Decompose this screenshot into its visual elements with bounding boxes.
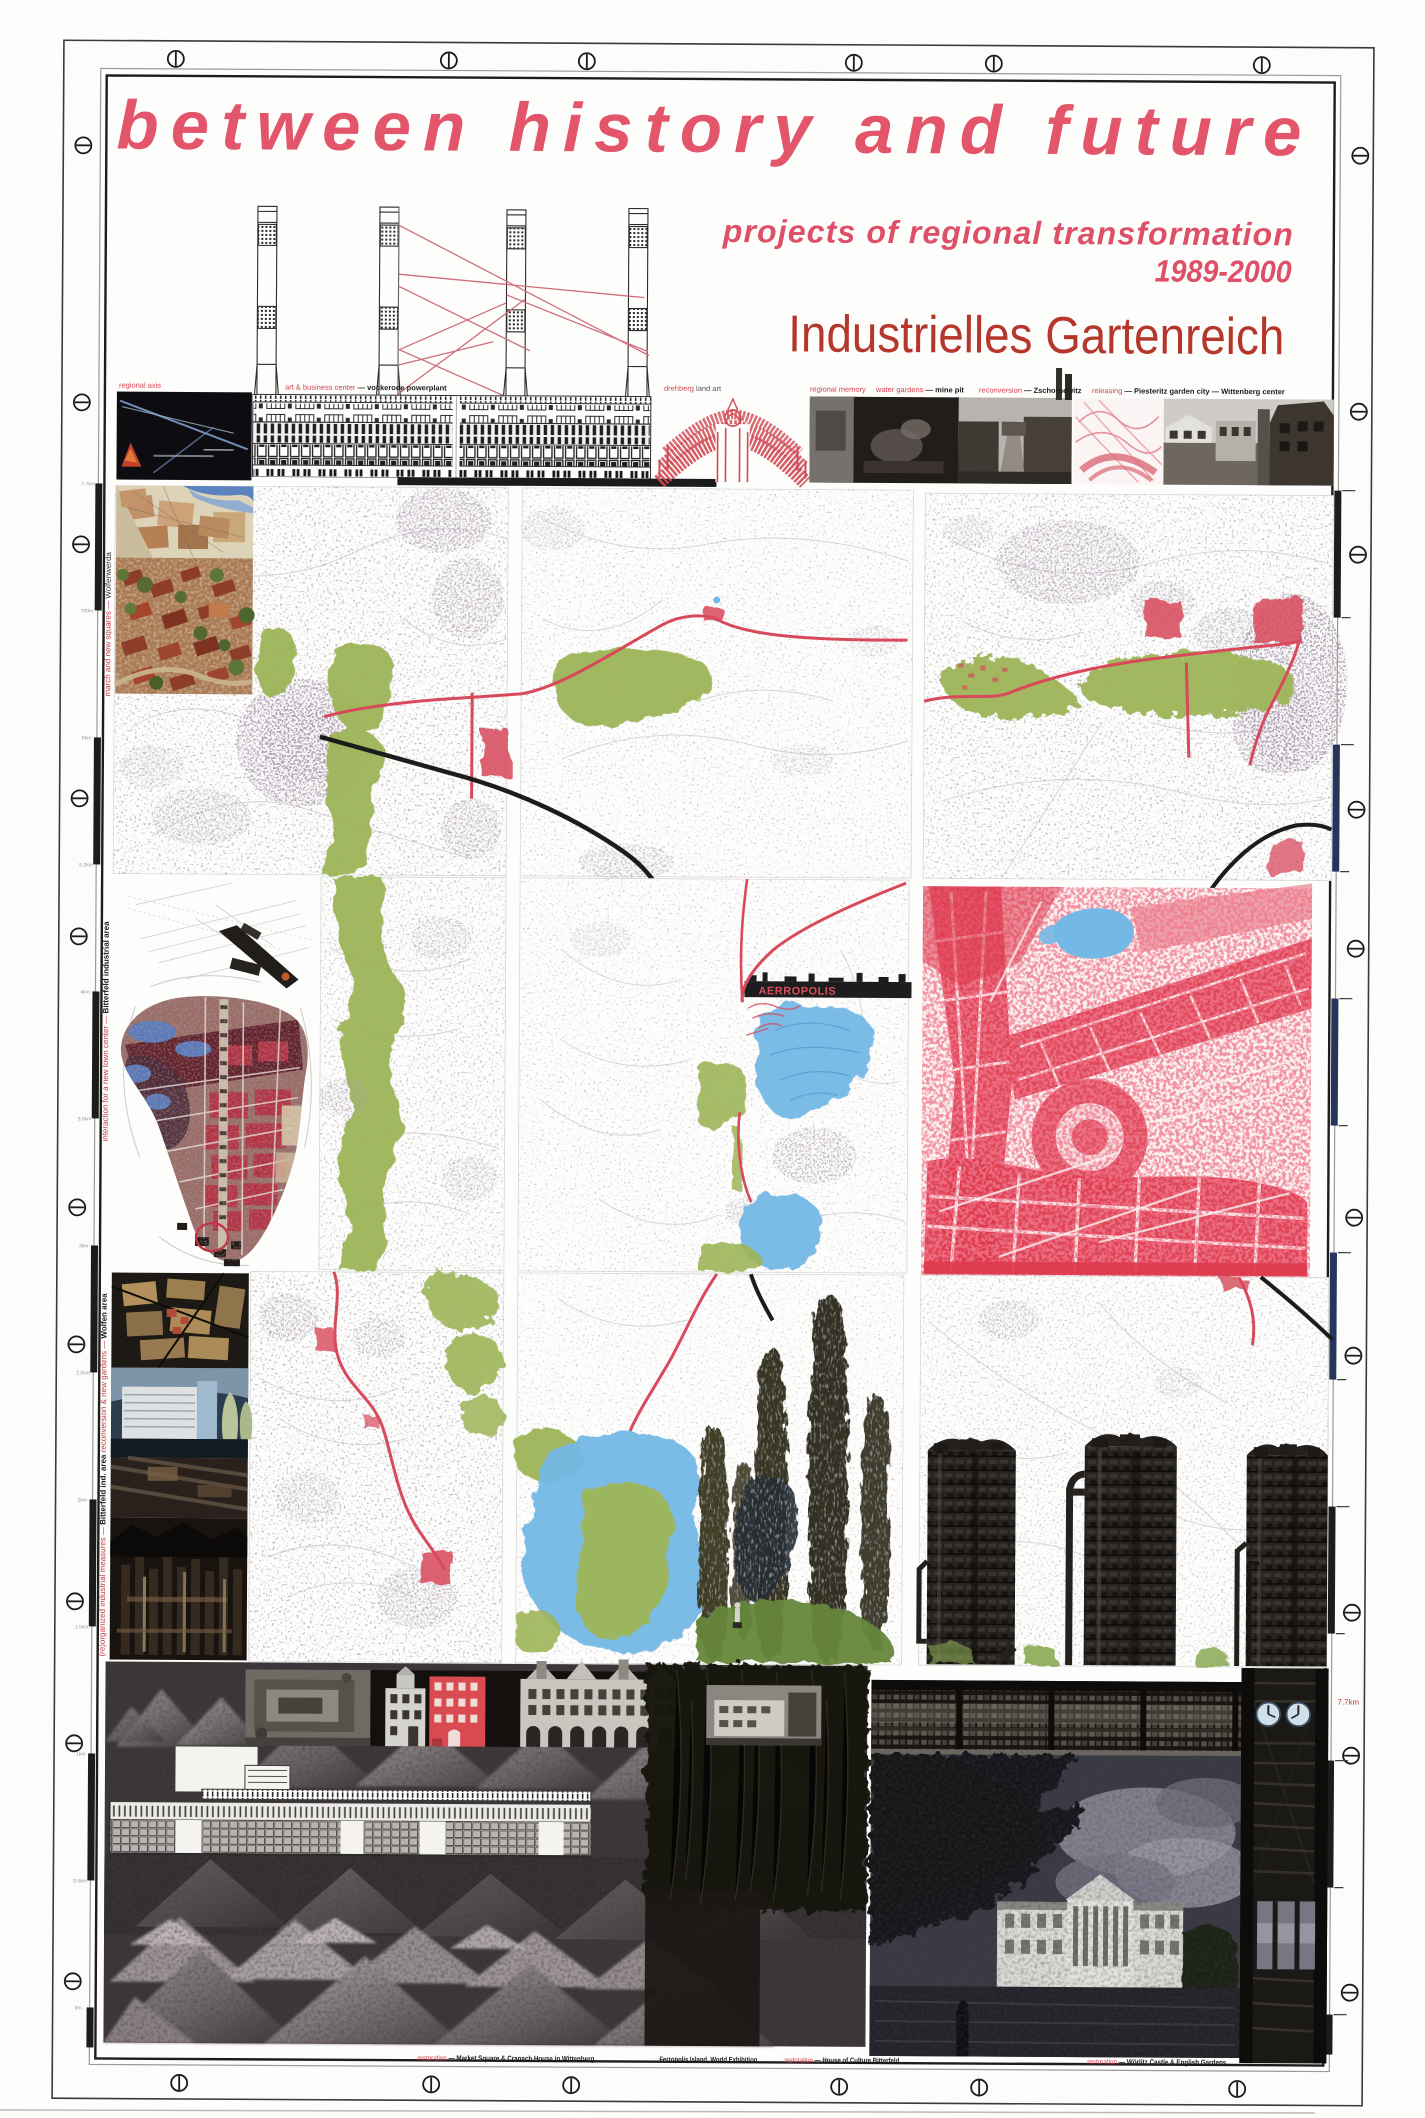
svg-text:regional memory: regional memory (810, 385, 866, 394)
svg-text:restoration — House of Culture: restoration — House of Culture Bitterfel… (784, 2055, 899, 2065)
svg-text:3.5km: 3.5km (78, 1116, 92, 1122)
svg-text:4km: 4km (80, 989, 89, 995)
svg-text:2.5km: 2.5km (76, 1370, 90, 1376)
svg-text:1989-2000: 1989-2000 (1155, 254, 1292, 290)
svg-text:interaction for a new town cen: interaction for a new town center — Bitt… (101, 921, 111, 1142)
svg-text:0m: 0m (75, 2005, 82, 2011)
svg-text:2km: 2km (78, 1497, 87, 1503)
svg-text:AERROPOLIS: AERROPOLIS (758, 985, 836, 997)
svg-text:0.5km: 0.5km (73, 1878, 87, 1884)
svg-text:march and new squares — Wolf: march and new squares — Wolfenwerda (103, 552, 113, 697)
svg-text:restoration — Market Square &: restoration — Market Square & Cranach Ho… (417, 2053, 594, 2063)
svg-text:700m: 700m (81, 608, 94, 614)
svg-text:6km: 6km (82, 735, 91, 741)
svg-text:restoration — Wörlitz Castle &: restoration — Wörlitz Castle & English G… (1087, 2057, 1226, 2067)
svg-text:5.2km: 5.2km (79, 862, 93, 868)
svg-text:art & business center — vock: art & business center — vockerode powerp… (285, 383, 447, 393)
svg-text:1.5km: 1.5km (75, 1624, 89, 1630)
svg-text:3km: 3km (79, 1243, 88, 1249)
svg-text:Ferropolis Island, World Exhib: Ferropolis Island, World Exhibition (659, 2055, 757, 2065)
svg-text:7.7km: 7.7km (81, 481, 95, 487)
svg-text:Industrielles Gartenreich: Industrielles Gartenreich (788, 305, 1284, 366)
svg-text:reconversion — Zschornewitz: reconversion — Zschornewitz (979, 386, 1082, 396)
svg-text:water gardens — mine pit: water gardens — mine pit (875, 385, 965, 395)
svg-text:drehberg land art: drehberg land art (664, 384, 722, 393)
svg-text:projects of regional transform: projects of regional transformation (722, 213, 1293, 252)
svg-text:releasing — Piesteritz garden: releasing — Piesteritz garden city — Wit… (1092, 386, 1285, 396)
svg-text:1km: 1km (76, 1751, 85, 1757)
svg-text:regional axis: regional axis (119, 381, 161, 390)
svg-text:7.7km: 7.7km (1337, 1698, 1359, 1707)
